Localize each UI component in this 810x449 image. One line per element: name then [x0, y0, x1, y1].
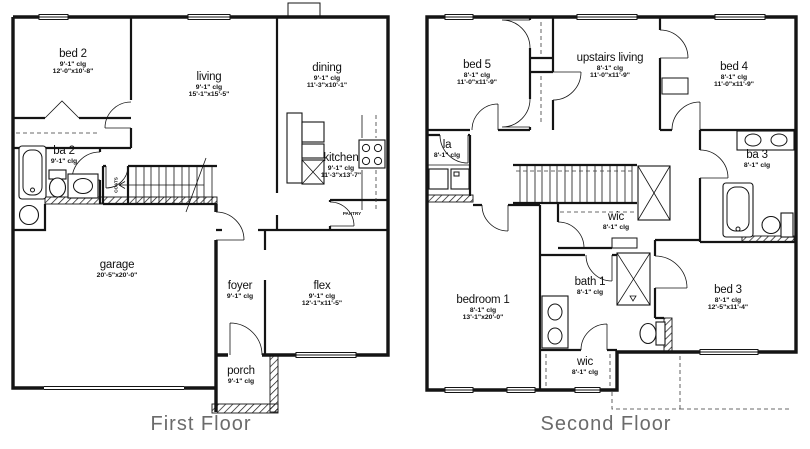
- window: [577, 14, 637, 20]
- garage-entry-door: [216, 212, 244, 240]
- room-label-bath1: bath 1 8'-1" clg: [575, 277, 606, 296]
- room-label-kitchen: kitchen 9'-1" clg 11'-3"x13'-7": [321, 153, 361, 179]
- wic-shelf: [612, 238, 637, 248]
- pantry-label: PANTRY: [343, 211, 361, 216]
- room-label-living: living 9'-1" clg 15'-1"x15'-5": [189, 72, 230, 98]
- stair-direction-arrow: [119, 182, 204, 189]
- room-label-bed5: bed 5 8'-1" clg 11'-0"x11'-9": [457, 60, 497, 86]
- laundry-appliances: [429, 169, 469, 189]
- bed2-door: [105, 102, 131, 128]
- front-door: [230, 323, 262, 355]
- room-label-ba2: ba 2 9'-1" clg: [51, 146, 77, 165]
- fireplace: [288, 3, 320, 17]
- room-label-wic-lower: wic 8'-1" clg: [572, 357, 598, 376]
- linen-closet: [638, 166, 670, 220]
- bathtub-icon: [19, 146, 46, 199]
- window: [296, 352, 356, 358]
- bed5-door: [472, 104, 498, 130]
- room-label-flex: flex 9'-1" clg 12'-1"x11'-5": [302, 281, 342, 307]
- garage-door-opening: [44, 384, 184, 392]
- window: [188, 14, 230, 20]
- double-vanity-icon: [737, 131, 794, 150]
- double-vanity-icon: [542, 296, 568, 348]
- window: [700, 349, 758, 355]
- room-label-bedroom1: bedroom 1 8'-1" clg 13'-1"x20'-0": [456, 295, 509, 321]
- toilet-icon: [49, 170, 66, 197]
- water-heater-icon: [20, 206, 39, 225]
- kitchen-island: [287, 113, 324, 184]
- window: [715, 14, 765, 20]
- room-label-foyer: foyer 9'-1" clg: [227, 281, 253, 300]
- ff-stairs: [103, 158, 217, 212]
- ba3-door: [700, 150, 728, 178]
- wic-door: [558, 222, 584, 248]
- room-label-bed4: bed 4 8'-1" clg 11'-0"x11'-9": [714, 62, 754, 88]
- room-label-upstairs-living: upstairs living 8'-1" clg 11'-0"x11'-9": [577, 53, 644, 79]
- shower-icon: [617, 253, 650, 305]
- toilet-icon: [762, 213, 793, 237]
- toilet-icon: [640, 322, 665, 345]
- window: [445, 387, 473, 393]
- first-floor-caption: First Floor: [151, 413, 252, 436]
- room-label-dining: dining 9'-1" clg 11'-3"x10'-1": [307, 63, 347, 89]
- stove-icon: [359, 140, 385, 168]
- sf-hatched-wall: [427, 195, 473, 202]
- window: [507, 387, 535, 393]
- sf-bath3-fixtures: [723, 131, 794, 237]
- upstairs-living-door: [660, 30, 688, 58]
- room-label-laundry: la 8'-1" clg: [434, 140, 460, 159]
- window: [39, 14, 68, 20]
- bedroom1-door: [482, 205, 508, 231]
- sf-stairs: [513, 165, 637, 203]
- bathtub-icon: [723, 183, 753, 237]
- room-label-ba3: ba 3 8'-1" clg: [744, 150, 770, 169]
- bed3-door: [655, 256, 687, 288]
- roof-outline-dashed: [612, 356, 792, 409]
- coats-label: COATS: [114, 177, 119, 193]
- bed5-closet-door: [502, 99, 530, 127]
- window: [575, 387, 600, 393]
- sink-icon: [68, 174, 98, 198]
- floor-plan-image: bed 2 9'-1" clg 12'-0"x10'-8" living 9'-…: [0, 0, 810, 449]
- room-label-porch: porch 9'-1" clg: [227, 366, 255, 385]
- floor-plan-svg: [0, 0, 810, 449]
- room-label-wic-upper: wic 8'-1" clg: [603, 212, 629, 231]
- hall-closet: [662, 78, 688, 94]
- room-label-bed2: bed 2 9'-1" clg 12'-0"x10'-8": [53, 49, 94, 75]
- dryer-icon: [429, 169, 448, 189]
- room-label-garage: garage 20'-5"x20'-0": [97, 260, 138, 279]
- bed5-closet-door: [502, 20, 530, 48]
- bed4-door: [672, 102, 700, 130]
- bifold-closet-door: [45, 101, 79, 118]
- window: [445, 14, 473, 20]
- second-floor-caption: Second Floor: [541, 413, 672, 436]
- wic2-door: [581, 324, 607, 350]
- room-label-bed3: bed 3 8'-1" clg 12'-5"x11'-4": [708, 285, 748, 311]
